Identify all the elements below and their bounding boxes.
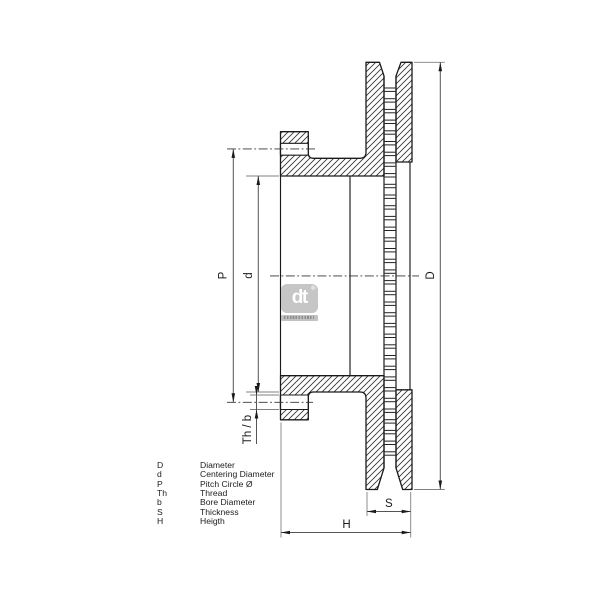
dt-logo-brand: dt [292,288,307,309]
centerlines [227,149,419,402]
arrowhead [232,393,236,402]
legend-symbol: b [157,498,200,507]
legend-description: Heigth [200,516,225,526]
flange-edge-lines [281,143,309,409]
height-label: H [342,519,350,531]
diameter-label: D [425,271,437,279]
dt-logo-subtext-bar [281,315,318,321]
dimension-P: P [218,149,236,402]
legend-symbol: d [157,470,200,479]
arrowhead [281,531,290,535]
thickness-label: S [385,498,393,510]
upper-outer-plate [396,62,412,162]
dt-logo: dt ® [281,284,318,313]
lower-hub-flange-and-plate [281,376,385,490]
legend-symbol: S [157,508,200,517]
arrowhead [367,510,376,514]
legend-symbol: Th [157,489,200,498]
legend-symbol: H [157,517,200,526]
thread-bore-label: Th / b [242,415,254,444]
dimension-H: H [281,519,411,534]
dimension-S: S [367,498,411,513]
lower-outer-plate [396,390,412,490]
centering-diameter-label: d [243,272,255,278]
legend-symbol: D [157,461,200,470]
extension-lines [246,62,445,537]
legend: DDiameterdCentering DiameterPPitch Circl… [157,461,275,526]
pitch-circle-label: P [218,271,230,279]
upper-hub-flange-and-plate [281,62,385,176]
arrowhead [402,510,411,514]
arrowhead [402,531,411,535]
vent-vane-rungs [385,88,396,455]
legend-row: HHeigth [157,517,275,526]
dimension-D: D [425,62,442,489]
vent-channel [384,76,396,468]
arrowhead [255,410,259,419]
arrowhead [232,149,236,158]
arrowhead [439,481,443,490]
drawing-canvas: P d Th / b D S H DDiameterdCentering Dia… [0,0,600,600]
registered-trademark-icon: ® [311,286,315,292]
dimension-d: d [243,176,260,392]
arrowhead [255,386,259,395]
arrowhead [439,62,443,71]
arrowhead [257,176,261,185]
flange-bolt-holes [281,143,309,409]
dt-logo-subtext [284,316,314,319]
